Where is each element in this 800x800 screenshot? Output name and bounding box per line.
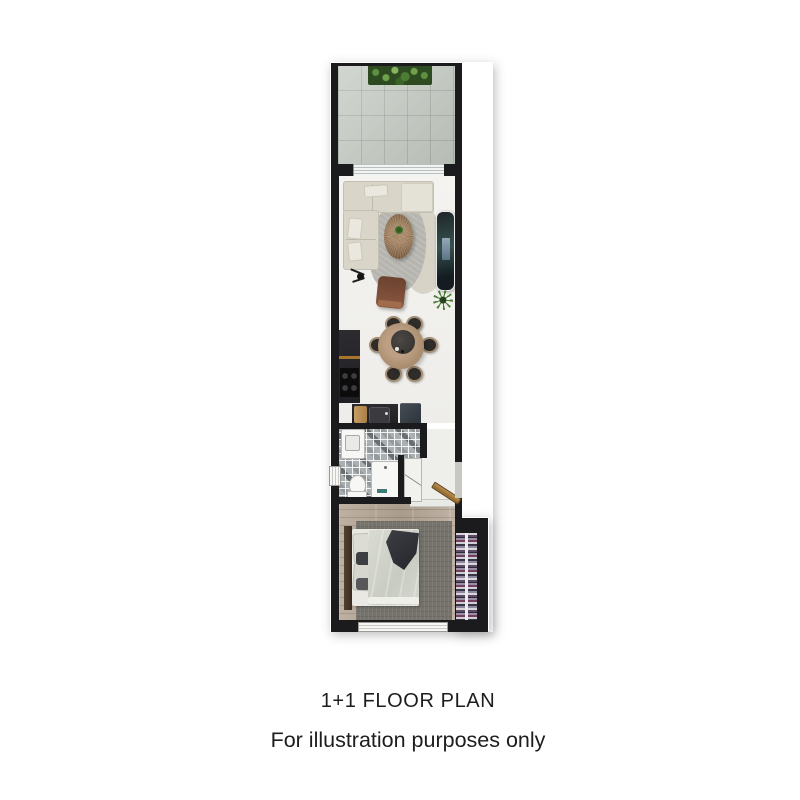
kitchen-sink: [369, 407, 390, 424]
left-wall: [331, 175, 339, 632]
washbasin: [345, 435, 360, 451]
sofa-pillow: [347, 217, 363, 240]
sofa-top-section: [343, 181, 434, 213]
faucet: [385, 412, 388, 415]
shower-drain: [384, 466, 387, 469]
bathroom-right-wall: [420, 423, 427, 458]
kitchen-wood-strip: [339, 356, 360, 359]
kitchen-tall-counter: [339, 330, 360, 403]
balcony-planter: [368, 64, 432, 85]
floor-lamp: [350, 268, 368, 284]
bathroom-window: [329, 466, 341, 486]
bedroom-window: [358, 622, 448, 632]
wardrobe-top-wall: [455, 518, 488, 533]
potted-plant: [433, 290, 453, 310]
balcony-top-wall: [331, 63, 462, 66]
sofa-pillow: [364, 184, 389, 198]
balcony-sliding-door-threshold: [353, 164, 446, 176]
tv-screen: [442, 238, 450, 260]
sofa-left-section: [343, 210, 379, 270]
armchair-seat-edge: [378, 300, 402, 308]
wardrobe-right-wall: [477, 533, 488, 632]
cup: [401, 350, 404, 353]
armchair: [375, 276, 406, 310]
coffee-table-plant: [395, 226, 403, 234]
floor-lamp-leg: [352, 277, 365, 283]
wardrobe-hanging-clothes: [455, 533, 478, 620]
bedroom-top-wall: [331, 497, 411, 504]
washbasin-unit: [341, 429, 365, 459]
sofa-chaise: [401, 183, 433, 212]
balcony-right-wall: [455, 63, 462, 175]
cup: [395, 347, 399, 351]
kitchen-sink-counter: [352, 404, 398, 425]
sofa-pillow: [347, 241, 363, 261]
coffee-table: [384, 214, 413, 259]
cutting-board: [354, 406, 367, 423]
sofa-seam: [346, 239, 376, 240]
right-wall-upper: [455, 175, 462, 462]
bath-accent: [377, 489, 387, 493]
dining-chair: [406, 366, 423, 382]
bathroom-top-wall: [331, 423, 427, 429]
dining-table: [378, 323, 424, 369]
cooktop: [340, 368, 359, 397]
tv-unit: [436, 211, 455, 291]
entry-doorway-opening: [455, 462, 462, 498]
bed-headboard: [344, 526, 352, 610]
plan-subtitle: For illustration purposes only: [8, 728, 800, 753]
bathroom-partition-wall: [398, 455, 404, 503]
balcony-left-wall: [331, 63, 338, 175]
bed-duvet-fold: [368, 597, 419, 604]
bathroom-door: [404, 458, 422, 502]
page: { "caption": { "title": "1+1 FLOOR PLAN"…: [0, 0, 800, 800]
plan-title: 1+1 FLOOR PLAN: [8, 690, 800, 713]
threshold-stub-left: [338, 164, 353, 176]
